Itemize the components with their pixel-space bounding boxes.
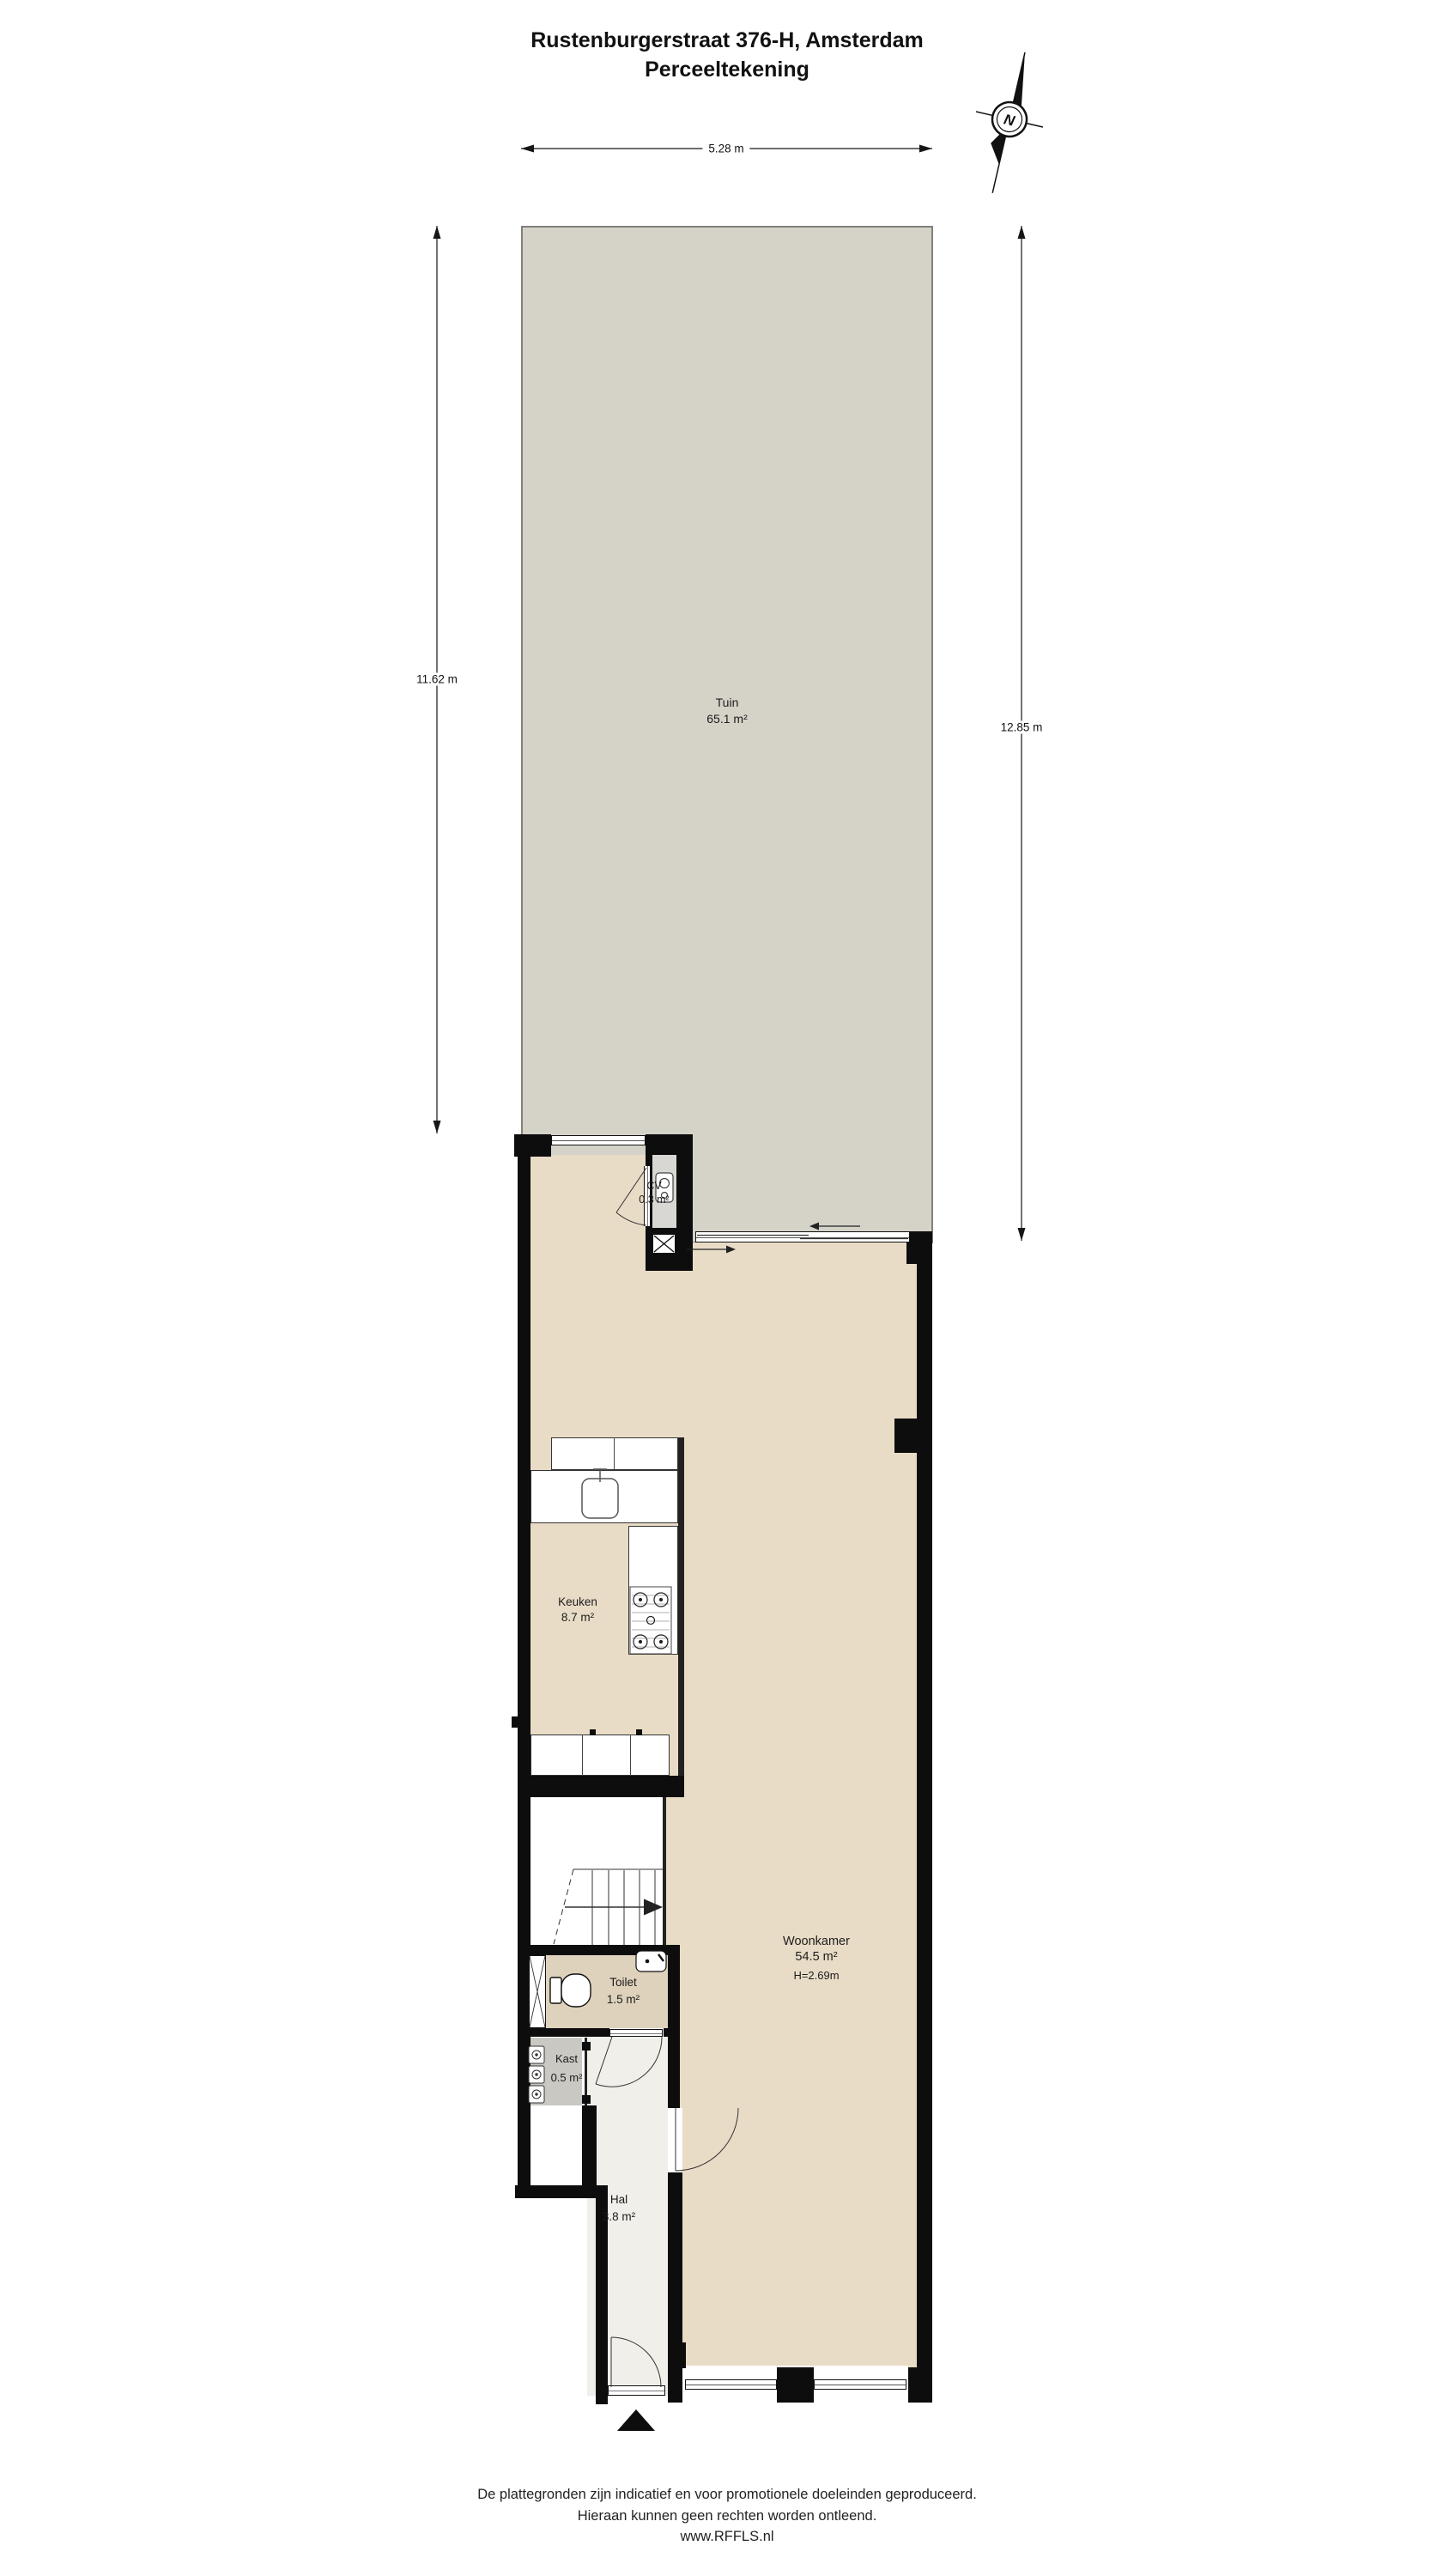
toilet-shaft [529, 1955, 546, 2028]
wall-stair-partition [663, 1797, 666, 1945]
tuin-area: 65.1 m² [706, 711, 747, 727]
kast-name: Kast [551, 2050, 583, 2069]
page-title: Rustenburgerstraat 376-H, Amsterdam Perc… [530, 26, 924, 84]
kitchen-sink-counter [530, 1470, 678, 1523]
keuken-name: Keuken [558, 1595, 597, 1610]
woonkamer-height: H=2.69m [783, 1968, 850, 1984]
facade-window-left [685, 2379, 777, 2390]
entrance-door-sill [608, 2385, 665, 2396]
facade-window-right [814, 2379, 906, 2390]
tuin-name: Tuin [706, 695, 747, 711]
kitchen-hob-counter [628, 1526, 678, 1655]
wall-stair-south [518, 1945, 680, 1955]
hall-door-opening [609, 2029, 663, 2037]
wall-toilet-south-left [528, 2028, 609, 2037]
keuken-label: Keuken 8.7 m² [558, 1595, 597, 1625]
kitchen-window [551, 1135, 646, 1145]
kast-area: 0.5 m² [551, 2069, 583, 2087]
wall-kitchen-south [518, 1776, 684, 1797]
tuin-label: Tuin 65.1 m² [706, 695, 747, 727]
woonkamer-label: Woonkamer 54.5 m² H=2.69m [783, 1934, 850, 1984]
entrance-arrow-icon [617, 2409, 655, 2431]
disclaimer: De plattegronden zijn indicatief en voor… [477, 2484, 977, 2548]
cabinet-divider [582, 1735, 583, 1776]
woonkamer-name: Woonkamer [783, 1934, 850, 1949]
wall-southwest-cap [515, 2185, 608, 2198]
wall-hall-right-upper [668, 2037, 680, 2108]
dimension-top-label: 5.28 m [702, 143, 749, 155]
disclaimer-website: www.RFFLS.nl [477, 2526, 977, 2548]
cv-shaft-box [652, 1234, 676, 1254]
garden-area [521, 226, 933, 1243]
cv-label: CV 0.3 m² [639, 1179, 669, 1206]
wall-hall-left [596, 2198, 608, 2404]
wall-notch [676, 2342, 686, 2368]
wall-left-step [512, 1716, 518, 1728]
compass-north-label: N [1003, 111, 1017, 129]
compass-icon: N [959, 45, 1058, 201]
title-address: Rustenburgerstraat 376-H, Amsterdam [530, 26, 924, 55]
wall-left [518, 1134, 530, 2198]
kitchen-lower-counter [530, 1735, 670, 1776]
hal-name: Hal [603, 2191, 635, 2208]
wall-kitchen-living [678, 1437, 684, 1776]
cabinet-divider [614, 1437, 615, 1470]
facade-pier-center [777, 2367, 814, 2403]
keuken-area: 8.7 m² [558, 1610, 597, 1625]
garden-sliding-door [695, 1231, 910, 1242]
closet-door-pivot [582, 2095, 591, 2104]
woonkamer-area: 54.5 m² [783, 1949, 850, 1965]
chimney-breast [894, 1419, 932, 1453]
wall-closet-stub [582, 2105, 597, 2185]
livingroom-floor [666, 1242, 917, 2367]
disclaimer-line1: De plattegronden zijn indicatief en voor… [477, 2484, 977, 2506]
closet-door-pivot [582, 2042, 591, 2050]
cabinet-divider [630, 1735, 631, 1776]
cv-area: 0.3 m² [639, 1193, 669, 1206]
kast-label: Kast 0.5 m² [551, 2050, 583, 2087]
counter-nub [590, 1729, 596, 1735]
livingroom-door-opening [668, 2108, 682, 2172]
hal-label: Hal 3.8 m² [603, 2191, 635, 2226]
toilet-label: Toilet 1.5 m² [607, 1974, 640, 2008]
floorplan-page: Rustenburgerstraat 376-H, Amsterdam Perc… [0, 0, 1449, 2576]
dimension-right-label: 12.85 m [995, 721, 1049, 734]
counter-nub [636, 1729, 642, 1735]
cv-name: CV [639, 1179, 669, 1193]
kitchen-cabinet-row [551, 1437, 678, 1470]
wall-right [917, 1231, 932, 2403]
disclaimer-line2: Hieraan kunnen geen rechten worden ontle… [477, 2506, 977, 2527]
dimension-left-label: 11.62 m [410, 673, 464, 686]
toilet-area: 1.5 m² [607, 1991, 640, 2008]
wall-toilet-right [668, 1945, 680, 2037]
wall-right-cap [906, 1231, 932, 1264]
wall-toilet-south-right [664, 2028, 680, 2037]
hal-area: 3.8 m² [603, 2208, 635, 2226]
toilet-name: Toilet [607, 1974, 640, 1991]
title-subtitle: Perceeltekening [530, 55, 924, 84]
stairwell-floor [530, 1797, 665, 1945]
